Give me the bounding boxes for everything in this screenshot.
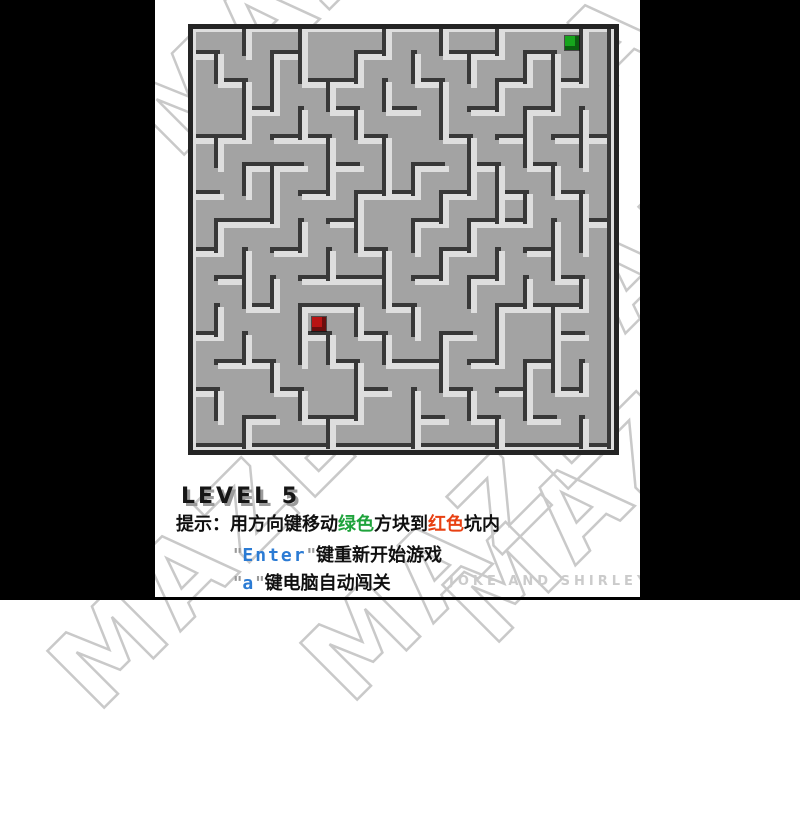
maze-wall	[443, 29, 449, 60]
maze-wall	[193, 194, 224, 200]
maze-wall	[358, 110, 364, 144]
maze-wall	[415, 307, 421, 341]
tip-red-word: 红色	[428, 514, 464, 535]
maze-wall	[443, 194, 449, 228]
maze-wall	[471, 138, 477, 200]
enter-key-label: Enter	[242, 545, 306, 566]
maze-wall	[358, 363, 364, 425]
maze-wall	[302, 391, 308, 425]
maze-wall	[471, 279, 477, 313]
maze-wall	[583, 419, 589, 450]
maze-wall	[246, 82, 252, 144]
maze-wall	[302, 110, 308, 144]
maze-wall	[358, 307, 364, 341]
maze-wall	[302, 307, 308, 369]
maze-wall	[499, 166, 505, 228]
right-black-bar	[640, 0, 800, 600]
auto-line-text: 键电脑自动闯关	[265, 573, 391, 594]
green-square	[565, 36, 579, 50]
maze-wall	[386, 251, 392, 313]
maze-wall	[415, 54, 421, 88]
maze-wall	[246, 29, 252, 60]
maze-wall	[218, 54, 224, 88]
maze-wall	[330, 138, 336, 200]
maze-wall	[218, 307, 224, 341]
left-black-bar	[0, 0, 155, 600]
maze-wall	[583, 279, 589, 313]
maze-board	[188, 24, 619, 455]
maze-floor	[193, 29, 614, 450]
maze-wall	[471, 391, 477, 425]
maze-wall	[527, 110, 533, 172]
instruction-line-move: 提示：用方向键移动绿色方块到红色坑内	[176, 510, 500, 536]
maze-wall	[471, 54, 477, 88]
maze-wall	[443, 251, 449, 285]
maze-wall	[246, 251, 252, 313]
maze-wall	[583, 194, 589, 256]
maze-wall	[499, 419, 505, 450]
maze-wall	[415, 166, 421, 200]
maze-wall	[583, 29, 589, 88]
maze-wall	[386, 363, 448, 369]
maze-wall	[218, 222, 224, 256]
maze-wall	[443, 335, 449, 397]
maze-wall	[555, 307, 561, 397]
maze-wall	[499, 307, 505, 369]
maze-wall	[527, 54, 533, 88]
maze-wall	[330, 419, 336, 450]
maze-wall	[415, 222, 421, 256]
enter-line-text: 键重新开始游戏	[316, 545, 442, 566]
maze-wall	[443, 82, 449, 144]
maze-wall	[302, 222, 308, 256]
maze-wall	[386, 82, 392, 116]
tip-suffix: 坑内	[464, 514, 500, 535]
tip-prefix: 提示：用方向键移动	[176, 514, 338, 535]
maze-wall	[358, 194, 364, 256]
maze-wall	[302, 279, 392, 285]
maze-wall	[193, 29, 614, 32]
maze-wall	[218, 222, 280, 228]
maze-wall	[246, 335, 252, 369]
quote-mark: "	[233, 545, 242, 566]
maze-wall	[358, 54, 364, 88]
auto-key-label: a	[242, 573, 255, 594]
maze-wall	[583, 363, 589, 397]
instruction-line-auto: "a"键电脑自动闯关	[233, 569, 391, 595]
maze-wall	[330, 335, 336, 369]
maze-wall	[386, 29, 392, 60]
quote-mark: "	[233, 573, 242, 594]
maze-wall	[471, 222, 477, 256]
maze-wall	[193, 29, 196, 450]
maze-wall	[274, 166, 280, 228]
tip-mid: 方块到	[374, 514, 428, 535]
maze-wall	[555, 54, 561, 116]
red-square	[312, 317, 326, 331]
maze-wall	[218, 391, 224, 425]
maze-wall	[274, 54, 280, 116]
maze-wall	[330, 251, 336, 285]
maze-wall	[555, 222, 561, 284]
maze-wall	[193, 447, 614, 450]
maze-wall	[611, 29, 614, 450]
maze-wall	[302, 29, 308, 88]
credit-text: JOKE AND SHIRLEY	[449, 574, 650, 589]
quote-mark: "	[307, 545, 316, 566]
instruction-line-enter: "Enter"键重新开始游戏	[233, 541, 442, 567]
maze-wall	[246, 419, 252, 450]
maze-wall	[386, 138, 392, 200]
maze-wall	[499, 251, 505, 285]
maze-wall	[274, 279, 280, 313]
level-title: LEVEL 5	[181, 484, 300, 509]
maze-wall	[302, 307, 364, 313]
maze-wall	[527, 279, 533, 313]
quote-mark: "	[255, 573, 264, 594]
maze-wall	[527, 194, 533, 228]
maze-wall	[274, 363, 280, 397]
maze-wall	[499, 82, 505, 116]
tip-green-word: 绿色	[338, 514, 374, 535]
maze-wall	[246, 166, 252, 200]
maze-wall	[499, 29, 505, 60]
maze-wall	[583, 110, 589, 172]
maze-wall	[386, 335, 392, 369]
maze-wall	[415, 391, 421, 450]
maze-wall	[555, 166, 561, 200]
maze-wall	[218, 138, 224, 172]
maze-wall	[330, 82, 336, 116]
maze-wall	[527, 363, 533, 425]
maze-wall	[499, 307, 589, 313]
